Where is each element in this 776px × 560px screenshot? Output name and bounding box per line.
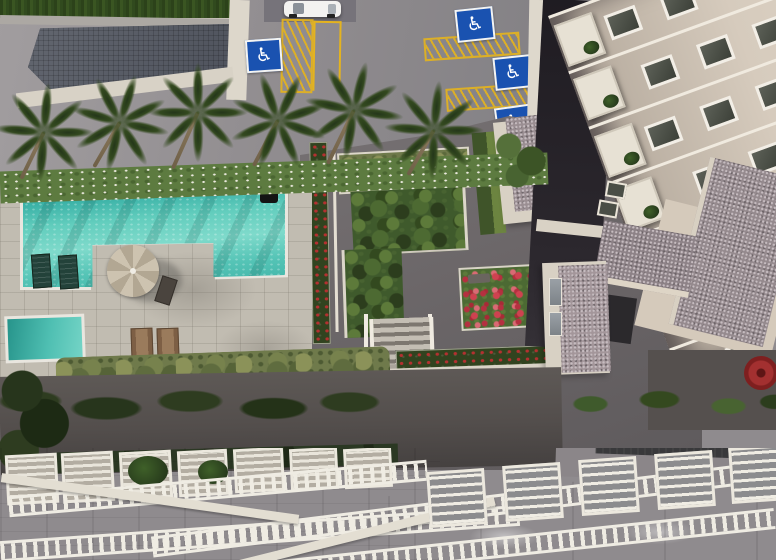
car-wheel <box>289 14 297 18</box>
wheelchair-icon: ♿ <box>504 62 523 83</box>
window <box>605 180 627 199</box>
roof-plant <box>128 456 168 486</box>
balcony-screen <box>502 462 564 522</box>
umbrella-center <box>130 268 136 274</box>
in-pool-lounger <box>58 254 79 289</box>
white-car <box>284 1 341 17</box>
balcony-screen <box>578 456 640 516</box>
shrub-cluster <box>492 128 548 188</box>
handicap-parking-sign: ♿ <box>454 6 495 43</box>
car-windshield <box>293 3 304 14</box>
balcony-screen <box>654 450 716 510</box>
wheelchair-icon: ♿ <box>466 14 485 35</box>
stair-tower-roof <box>558 264 611 373</box>
window <box>549 278 562 306</box>
car-wheel <box>327 14 335 18</box>
courtyard-plants <box>556 382 776 426</box>
balcony-screen <box>426 468 488 528</box>
car-rear-window <box>328 4 336 14</box>
balcony-screen <box>728 448 776 504</box>
window <box>549 312 562 336</box>
handicap-parking-sign: ♿ <box>245 38 283 73</box>
wheelchair-icon: ♿ <box>255 45 273 65</box>
in-pool-lounger <box>31 253 52 288</box>
kids-pool <box>7 317 82 361</box>
planter-hedge-corner <box>350 186 468 256</box>
aerial-render: ♿ ♿ ♿ ♿ <box>0 0 776 560</box>
foreground-building-roof <box>0 448 776 560</box>
garden-bench <box>468 273 491 284</box>
window <box>597 199 619 218</box>
